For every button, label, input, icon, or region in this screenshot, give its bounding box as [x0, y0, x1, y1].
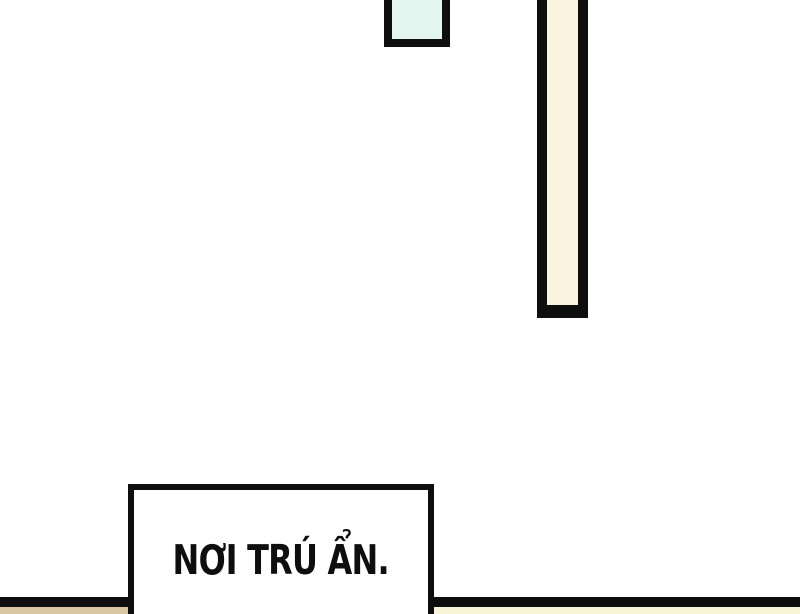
caption-box: NƠI TRÚ ẨN. — [128, 484, 434, 614]
floor-strip-right — [433, 607, 800, 614]
caption-text: NƠI TRÚ ẨN. — [173, 540, 389, 581]
pillar — [537, 0, 588, 318]
small-window-box — [384, 0, 450, 47]
comic-panel: NƠI TRÚ ẨN. — [0, 0, 800, 614]
floor-strip-left — [0, 607, 129, 614]
